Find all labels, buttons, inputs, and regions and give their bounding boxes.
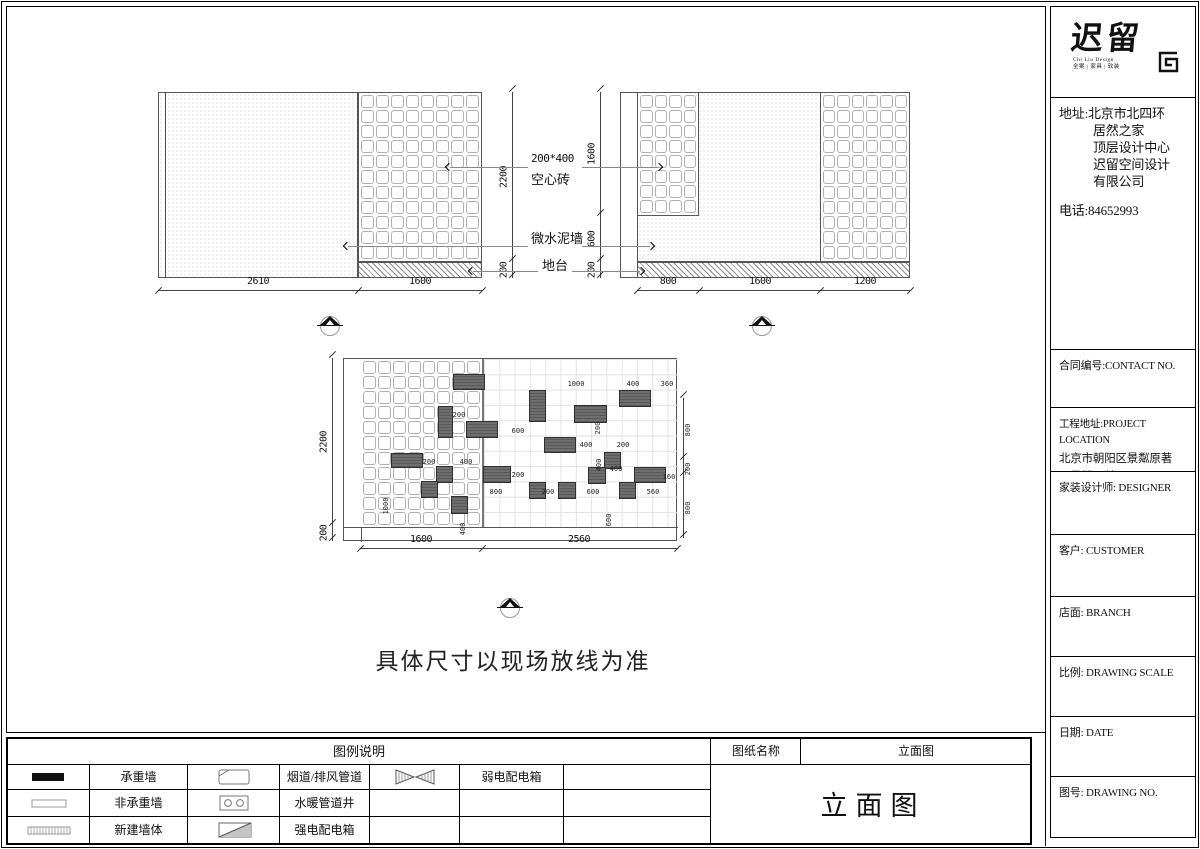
brick-cell bbox=[393, 361, 406, 374]
brick-cell bbox=[363, 497, 376, 510]
brick-cell bbox=[640, 185, 653, 198]
dimension-label: 1000 bbox=[568, 380, 585, 388]
flue-duct-symbol bbox=[188, 764, 280, 790]
brick-cell bbox=[452, 436, 465, 449]
brick-cell bbox=[436, 201, 449, 214]
brick-cell bbox=[866, 231, 878, 244]
text-line: 迟留空间设计 bbox=[1093, 156, 1189, 173]
brick-cell bbox=[363, 436, 376, 449]
brick-cell bbox=[423, 361, 436, 374]
dimension-label: 1000 bbox=[382, 498, 390, 515]
brick-cell bbox=[361, 170, 374, 183]
brick-cell bbox=[363, 482, 376, 495]
address-line: 地址:北京市北四环 bbox=[1059, 105, 1189, 122]
brick-cell bbox=[823, 140, 835, 153]
brick-cell bbox=[866, 155, 878, 168]
brick-cell bbox=[466, 125, 479, 138]
legend-empty-cell bbox=[460, 790, 564, 816]
dark-brick-block bbox=[436, 466, 453, 483]
brick-cell bbox=[406, 125, 419, 138]
brick-cell bbox=[866, 170, 878, 183]
brick-cell bbox=[655, 200, 668, 213]
brick-cell bbox=[866, 110, 878, 123]
brick-cell bbox=[378, 421, 391, 434]
legend-header: 图例说明 图纸名称 立面图 bbox=[8, 739, 1030, 765]
brick-cell bbox=[423, 497, 436, 510]
dimension-label: 1600 bbox=[749, 276, 771, 287]
brick-cell bbox=[467, 497, 480, 510]
logo-wordmark: 迟留 bbox=[1069, 13, 1145, 59]
dimension-label: 600 bbox=[512, 427, 525, 435]
brick-cell bbox=[823, 246, 835, 259]
dimension-label: 200 bbox=[542, 488, 555, 496]
dimension-label: 200 bbox=[587, 262, 598, 279]
brick-cell bbox=[684, 185, 697, 198]
brick-cell bbox=[852, 231, 864, 244]
brick-cell bbox=[361, 110, 374, 123]
brick-cell bbox=[466, 216, 479, 229]
brick-cell bbox=[852, 155, 864, 168]
brick-cell bbox=[393, 482, 406, 495]
dimension-label: 400 bbox=[610, 465, 623, 473]
brick-cell bbox=[466, 95, 479, 108]
brick-cell bbox=[880, 170, 892, 183]
brick-cell bbox=[391, 170, 404, 183]
brick-cell bbox=[437, 452, 450, 465]
brick-cell bbox=[880, 201, 892, 214]
dark-brick-block bbox=[466, 421, 498, 438]
logo-block: 迟留 Chi Liu Design 全案 | 家具 | 软装 bbox=[1051, 7, 1195, 98]
logo-subtitle: Chi Liu Design 全案 | 家具 | 软装 bbox=[1073, 57, 1120, 71]
dimension-label: 800 bbox=[684, 502, 692, 515]
brick-cell bbox=[437, 482, 450, 495]
brick-cell bbox=[823, 186, 835, 199]
brick-cell bbox=[880, 216, 892, 229]
material-label-microcement: 微水泥墙 bbox=[531, 228, 583, 247]
brick-cell bbox=[684, 125, 697, 138]
brick-cell bbox=[837, 186, 849, 199]
text-line: 居然之家 bbox=[1093, 122, 1189, 139]
dimension-label: 400 bbox=[580, 441, 593, 449]
dimension-label: 1600 bbox=[409, 276, 431, 287]
dimension-label: 800 bbox=[490, 488, 503, 496]
brick-cell bbox=[376, 201, 389, 214]
brick-cell bbox=[880, 110, 892, 123]
brick-cell bbox=[640, 125, 653, 138]
logo-subtitle-en: Chi Liu Design bbox=[1073, 57, 1120, 64]
lower-drawing: 1000400360200200600400200200400400400160… bbox=[343, 358, 677, 541]
brick-cell bbox=[451, 246, 464, 259]
brick-cell bbox=[361, 231, 374, 244]
brick-cell bbox=[406, 140, 419, 153]
brick-cell bbox=[466, 110, 479, 123]
dimension-label: 2610 bbox=[247, 276, 269, 287]
project-location-lines: 北京市朝阳区景粼原著20号楼三单元101 bbox=[1059, 451, 1189, 472]
dimension-label: 200 bbox=[617, 441, 630, 449]
brick-cell bbox=[852, 140, 864, 153]
brick-cell bbox=[452, 361, 465, 374]
brick-cell bbox=[866, 125, 878, 138]
brick-cell bbox=[391, 140, 404, 153]
brick-cell bbox=[451, 95, 464, 108]
brick-cell bbox=[823, 95, 835, 108]
brick-cell bbox=[466, 140, 479, 153]
elevation-view-marker bbox=[500, 598, 520, 618]
brick-cell bbox=[880, 125, 892, 138]
brick-cell bbox=[408, 482, 421, 495]
brick-cell bbox=[363, 512, 376, 525]
material-label-platform: 地台 bbox=[542, 255, 568, 274]
hollow-brick-grid-right-b bbox=[820, 92, 910, 262]
brick-cell bbox=[376, 231, 389, 244]
brick-cell bbox=[378, 467, 391, 480]
legend-body: 承重墙 烟道/排风管道 弱电配电箱 非承重墙 水暖管道井 bbox=[8, 764, 710, 843]
dimension-label: 400 bbox=[595, 459, 603, 472]
title-block: 迟留 Chi Liu Design 全案 | 家具 | 软装 地址:北京市北四环… bbox=[1050, 6, 1196, 838]
brick-cell bbox=[823, 155, 835, 168]
sheet-title: 立面图 bbox=[710, 764, 1035, 843]
brick-cell bbox=[421, 246, 434, 259]
brick-cell bbox=[376, 155, 389, 168]
brick-cell bbox=[376, 246, 389, 259]
dark-brick-block bbox=[421, 481, 438, 498]
dark-brick-block bbox=[453, 374, 485, 390]
brick-cell bbox=[837, 140, 849, 153]
brick-cell bbox=[391, 216, 404, 229]
brick-cell bbox=[376, 186, 389, 199]
leader-line bbox=[450, 167, 528, 168]
elevation-left-plaster-wall bbox=[158, 92, 358, 278]
brick-cell bbox=[466, 231, 479, 244]
brick-cell bbox=[451, 125, 464, 138]
dark-brick-block bbox=[544, 437, 576, 453]
brick-cell bbox=[378, 452, 391, 465]
brick-cell bbox=[408, 406, 421, 419]
brick-cell bbox=[684, 170, 697, 183]
brick-cell bbox=[406, 231, 419, 244]
project-location-label: 工程地址:PROJECT LOCATION bbox=[1059, 417, 1189, 449]
brick-cell bbox=[684, 155, 697, 168]
brick-cell bbox=[669, 125, 682, 138]
brick-cell bbox=[391, 125, 404, 138]
dark-brick-block bbox=[619, 390, 651, 407]
brick-cell bbox=[837, 216, 849, 229]
brick-cell bbox=[436, 216, 449, 229]
dimension-label: 200 bbox=[423, 458, 436, 466]
brick-cell bbox=[669, 170, 682, 183]
brick-cell bbox=[421, 186, 434, 199]
brick-cell bbox=[467, 406, 480, 419]
leader-line bbox=[582, 167, 658, 168]
brick-cell bbox=[655, 140, 668, 153]
dimension-label: 600 bbox=[605, 514, 613, 527]
brick-cell bbox=[452, 391, 465, 404]
brick-cell bbox=[837, 155, 849, 168]
brick-cell bbox=[391, 110, 404, 123]
brick-cell bbox=[866, 201, 878, 214]
brick-cell bbox=[466, 201, 479, 214]
brick-cell bbox=[421, 216, 434, 229]
brick-cell bbox=[423, 467, 436, 480]
address-block: 地址:北京市北四环 居然之家顶层设计中心迟留空间设计有限公司 电话:846529… bbox=[1051, 98, 1195, 350]
brick-cell bbox=[684, 140, 697, 153]
brick-cell bbox=[669, 110, 682, 123]
leader-line bbox=[348, 246, 528, 247]
brick-cell bbox=[880, 140, 892, 153]
brick-cell bbox=[895, 155, 907, 168]
legend-label: 强电配电箱 bbox=[280, 817, 370, 843]
brick-cell bbox=[669, 185, 682, 198]
customer-block: 客户: CUSTOMER bbox=[1051, 535, 1195, 597]
dimension-line bbox=[637, 290, 910, 291]
brick-cell bbox=[451, 170, 464, 183]
brick-cell bbox=[823, 201, 835, 214]
brick-cell bbox=[895, 231, 907, 244]
brick-cell bbox=[436, 125, 449, 138]
strong-power-box-symbol bbox=[188, 817, 280, 843]
brick-cell bbox=[361, 140, 374, 153]
brick-cell bbox=[466, 186, 479, 199]
brick-cell bbox=[408, 512, 421, 525]
text-line: 顶层设计中心 bbox=[1093, 139, 1189, 156]
brick-cell bbox=[406, 95, 419, 108]
dimension-label: 160 bbox=[663, 473, 676, 481]
brick-cell bbox=[823, 110, 835, 123]
dimension-label: 800 bbox=[684, 424, 692, 437]
leader-line bbox=[572, 271, 640, 272]
brick-cell bbox=[466, 170, 479, 183]
dark-brick-block bbox=[451, 496, 468, 514]
date-block: 日期: DATE bbox=[1051, 717, 1195, 777]
brick-cell bbox=[406, 246, 419, 259]
sheet-name-label: 图纸名称 bbox=[710, 739, 801, 764]
text-line: 北京市朝阳区景粼原著 bbox=[1059, 451, 1189, 467]
brick-cell bbox=[866, 216, 878, 229]
wall-edge-strip bbox=[620, 92, 638, 278]
brick-cell bbox=[895, 170, 907, 183]
dimension-label: 200 bbox=[319, 525, 330, 542]
brick-cell bbox=[655, 110, 668, 123]
brick-cell bbox=[378, 391, 391, 404]
legend-empty-cell bbox=[564, 817, 710, 843]
brick-cell bbox=[391, 186, 404, 199]
brick-cell bbox=[640, 140, 653, 153]
brick-cell bbox=[421, 231, 434, 244]
brick-cell bbox=[436, 95, 449, 108]
brick-cell bbox=[837, 110, 849, 123]
brick-cell bbox=[669, 140, 682, 153]
new-wall-symbol bbox=[8, 817, 90, 843]
drawing-no-block: 图号: DRAWING NO. bbox=[1051, 777, 1195, 839]
brick-cell bbox=[376, 95, 389, 108]
brick-cell bbox=[467, 482, 480, 495]
brick-cell bbox=[467, 512, 480, 525]
phone-line: 电话:84652993 bbox=[1059, 200, 1189, 219]
brick-cell bbox=[852, 246, 864, 259]
dimension-label: 200 bbox=[512, 471, 525, 479]
brick-cell bbox=[880, 155, 892, 168]
legend-table: 图例说明 图纸名称 立面图 承重墙 烟道/排风管道 弱电配电箱 非承重墙 bbox=[6, 737, 1032, 845]
leader-line bbox=[582, 246, 650, 247]
dimension-label: 2560 bbox=[568, 534, 590, 545]
brick-cell bbox=[452, 482, 465, 495]
legend-label: 新建墙体 bbox=[90, 817, 188, 843]
brick-cell bbox=[451, 231, 464, 244]
brick-cell bbox=[837, 231, 849, 244]
dark-brick-block bbox=[634, 467, 666, 483]
brick-cell bbox=[378, 361, 391, 374]
leader-line bbox=[473, 271, 538, 272]
brick-cell bbox=[866, 140, 878, 153]
brick-cell bbox=[467, 436, 480, 449]
elevation-view-marker bbox=[320, 316, 340, 336]
site-note: 具体尺寸以现场放线为准 bbox=[353, 642, 673, 676]
brick-cell bbox=[436, 186, 449, 199]
brick-cell bbox=[393, 391, 406, 404]
legend-label: 非承重墙 bbox=[90, 790, 188, 816]
legend-empty-cell bbox=[370, 817, 460, 843]
dimension-label: 200 bbox=[684, 463, 692, 476]
brick-cell bbox=[451, 186, 464, 199]
legend-title: 图例说明 bbox=[8, 739, 710, 764]
brick-cell bbox=[406, 201, 419, 214]
brick-cell bbox=[423, 436, 436, 449]
dark-brick-block bbox=[529, 390, 546, 422]
brick-cell bbox=[436, 246, 449, 259]
text-line: 有限公司 bbox=[1093, 173, 1189, 190]
brick-cell bbox=[451, 216, 464, 229]
brick-cell bbox=[852, 95, 864, 108]
legend-label: 弱电配电箱 bbox=[460, 764, 564, 790]
brick-cell bbox=[852, 110, 864, 123]
brick-cell bbox=[393, 436, 406, 449]
brick-cell bbox=[669, 155, 682, 168]
brick-cell bbox=[361, 216, 374, 229]
brick-cell bbox=[684, 110, 697, 123]
brick-cell bbox=[361, 125, 374, 138]
brick-cell bbox=[655, 125, 668, 138]
brick-cell bbox=[880, 95, 892, 108]
brick-cell bbox=[423, 376, 436, 389]
branch-block: 店面: BRANCH bbox=[1051, 597, 1195, 657]
dimension-label: 200 bbox=[453, 411, 466, 419]
brick-cell bbox=[437, 436, 450, 449]
brick-cell bbox=[866, 186, 878, 199]
brick-cell bbox=[467, 391, 480, 404]
brick-cell bbox=[866, 246, 878, 259]
dimension-label: 200 bbox=[499, 262, 510, 279]
brick-cell bbox=[393, 421, 406, 434]
dimension-label: 560 bbox=[647, 488, 660, 496]
brick-cell bbox=[423, 512, 436, 525]
brick-cell bbox=[378, 436, 391, 449]
brick-cell bbox=[393, 376, 406, 389]
brick-cell bbox=[895, 246, 907, 259]
brick-cell bbox=[436, 170, 449, 183]
dimension-line bbox=[512, 92, 513, 278]
brick-cell bbox=[391, 201, 404, 214]
brick-cell bbox=[655, 95, 668, 108]
brick-cell bbox=[376, 110, 389, 123]
brick-cell bbox=[640, 170, 653, 183]
brick-cell bbox=[408, 361, 421, 374]
brick-cell bbox=[361, 246, 374, 259]
dimension-line bbox=[600, 92, 601, 278]
brick-cell bbox=[421, 170, 434, 183]
dimension-label: 600 bbox=[587, 488, 600, 496]
brick-cell bbox=[640, 95, 653, 108]
brick-cell bbox=[467, 467, 480, 480]
dimension-label: 400 bbox=[459, 523, 467, 536]
brick-cell bbox=[393, 497, 406, 510]
brick-cell bbox=[837, 170, 849, 183]
dark-brick-block bbox=[574, 405, 607, 423]
brick-cell bbox=[640, 110, 653, 123]
brick-cell bbox=[437, 361, 450, 374]
brick-cell bbox=[895, 201, 907, 214]
brick-cell bbox=[421, 140, 434, 153]
platform-top-line bbox=[344, 527, 678, 528]
brick-cell bbox=[436, 140, 449, 153]
legend-empty-cell bbox=[564, 764, 710, 790]
legend-empty-cell bbox=[370, 790, 460, 816]
legend-empty-cell bbox=[460, 817, 564, 843]
legend-label: 承重墙 bbox=[90, 764, 188, 790]
brick-cell bbox=[451, 140, 464, 153]
brick-cell bbox=[363, 452, 376, 465]
brick-cell bbox=[669, 95, 682, 108]
weak-power-box-symbol bbox=[370, 764, 460, 790]
dimension-label: 1600 bbox=[587, 143, 598, 165]
brick-cell bbox=[391, 95, 404, 108]
load-bearing-wall-symbol bbox=[8, 764, 90, 790]
dark-brick-block bbox=[619, 482, 636, 499]
brick-cell bbox=[421, 95, 434, 108]
legend-empty-cell bbox=[564, 790, 710, 816]
dark-brick-block bbox=[558, 482, 576, 499]
brick-cell bbox=[823, 125, 835, 138]
brick-cell bbox=[393, 467, 406, 480]
brick-cell bbox=[391, 246, 404, 259]
brick-cell bbox=[655, 185, 668, 198]
brick-cell bbox=[823, 216, 835, 229]
brick-cell bbox=[852, 170, 864, 183]
brick-cell bbox=[378, 376, 391, 389]
brick-cell bbox=[406, 186, 419, 199]
hollow-brick-grid-left bbox=[358, 92, 482, 262]
dimension-label: 400 bbox=[627, 380, 640, 388]
brick-cell bbox=[421, 155, 434, 168]
sheet-name-value: 立面图 bbox=[800, 739, 1031, 764]
brick-cell bbox=[361, 95, 374, 108]
dimension-label: 1200 bbox=[854, 276, 876, 287]
brick-cell bbox=[376, 140, 389, 153]
dimension-line bbox=[332, 358, 333, 541]
brick-cell bbox=[408, 467, 421, 480]
elevation-view-marker bbox=[752, 316, 772, 336]
frame-divider-line bbox=[1045, 733, 1046, 846]
legend-label: 水暖管道井 bbox=[280, 790, 370, 816]
brick-cell bbox=[406, 155, 419, 168]
brick-cell bbox=[361, 186, 374, 199]
brick-cell bbox=[895, 140, 907, 153]
brick-cell bbox=[895, 216, 907, 229]
brick-cell bbox=[408, 436, 421, 449]
brick-cell bbox=[684, 95, 697, 108]
brick-cell bbox=[421, 201, 434, 214]
logo-subtitle-zh: 全案 | 家具 | 软装 bbox=[1073, 64, 1120, 71]
brick-cell bbox=[852, 186, 864, 199]
